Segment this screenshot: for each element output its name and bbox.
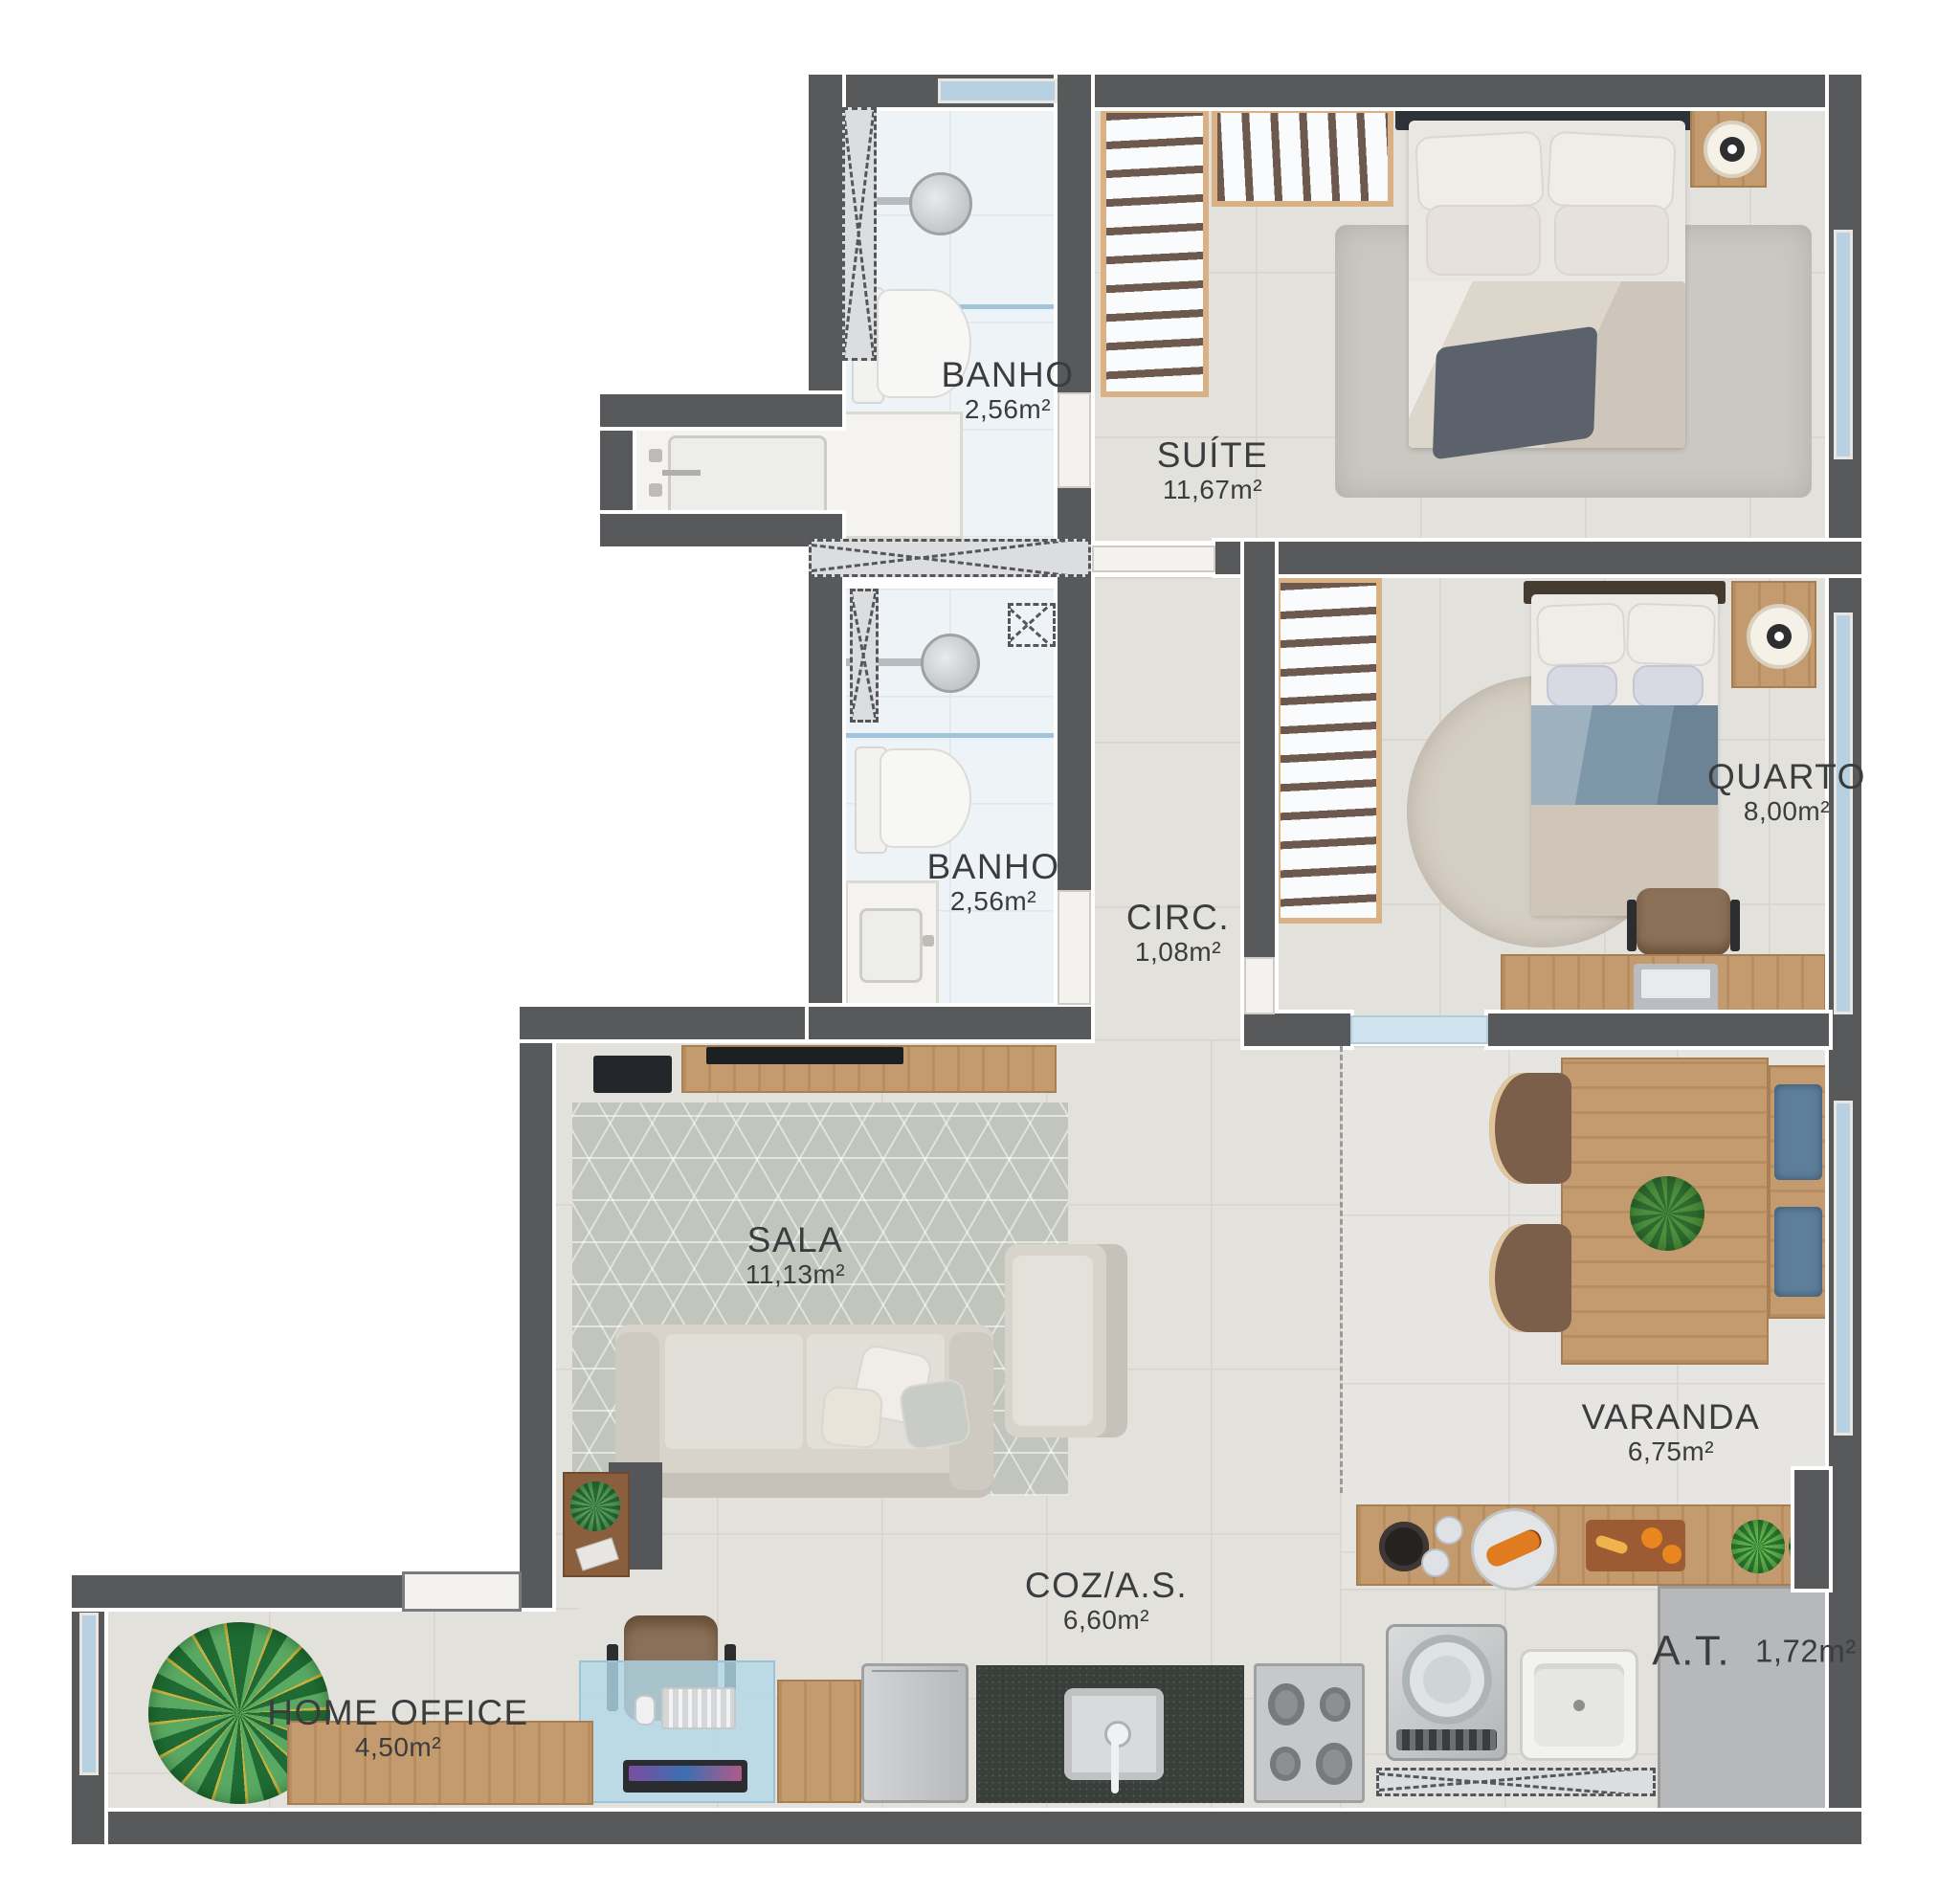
mouse-icon <box>635 1695 656 1726</box>
sala-armchair <box>1005 1244 1127 1437</box>
wall-sala-left <box>520 1005 552 1608</box>
room-area: 11,67m² <box>1157 476 1268 506</box>
monitor-icon <box>623 1760 747 1793</box>
varanda-dining-table <box>1561 1058 1769 1365</box>
shaft-between-bathrooms <box>809 539 1091 577</box>
wall-bath-left-lower <box>809 546 842 1039</box>
suite-double-bed <box>1395 103 1699 448</box>
wall-sala-top <box>520 1007 842 1039</box>
sink-counter-banho-social <box>845 880 939 1009</box>
room-area: 8,00m² <box>1707 797 1866 828</box>
room-label-quarto: QUARTO 8,00m² <box>1707 757 1866 828</box>
fridge-icon <box>861 1663 969 1803</box>
room-label-banho-suite: BANHO 2,56m² <box>941 355 1074 426</box>
floor-plan: BANHO 2,56m² SUÍTE 11,67m² BANHO 2,56m² … <box>0 0 1960 1893</box>
kitchen-counter-strip <box>777 1680 861 1803</box>
quarto-nightstand <box>1731 581 1816 688</box>
laptop-icon <box>1634 964 1718 1016</box>
room-area: 4,50m² <box>267 1733 528 1764</box>
door-banho-social <box>1058 890 1091 1005</box>
shower-glass-banho-social <box>842 733 1058 738</box>
room-label-banho-social: BANHO 2,56m² <box>926 847 1059 918</box>
sala-sofa <box>615 1325 993 1498</box>
window-varanda-right <box>1834 1101 1853 1436</box>
room-name: QUARTO <box>1707 757 1866 796</box>
room-name: A.T. <box>1652 1627 1730 1674</box>
quarto-wardrobe <box>1275 577 1382 924</box>
window-banho-suite-top <box>938 78 1058 103</box>
room-area: 2,56m² <box>926 887 1059 918</box>
room-label-varanda: VARANDA 6,75m² <box>1582 1397 1761 1468</box>
room-label-suite: SUÍTE 11,67m² <box>1157 435 1268 506</box>
cutting-board-icon <box>1586 1520 1685 1571</box>
wall-niche-top <box>600 394 842 427</box>
wall-bath-left-upper <box>809 75 842 394</box>
wall-bottom <box>72 1812 1861 1844</box>
room-name: SALA <box>746 1220 845 1259</box>
counter-plant-1 <box>1731 1520 1785 1573</box>
sala-side-table <box>563 1472 630 1577</box>
stove-icon <box>1254 1663 1365 1803</box>
window-suite-right <box>1834 230 1853 459</box>
varanda-chair-2 <box>1489 1224 1571 1332</box>
sala-tv-console <box>681 1045 1057 1093</box>
suite-wardrobe-vertical <box>1101 107 1209 397</box>
circ-floor <box>1088 577 1244 1046</box>
room-name: SUÍTE <box>1157 435 1268 475</box>
sala-varanda-open-boundary <box>1340 1046 1343 1493</box>
room-name: COZ/A.S. <box>1025 1566 1188 1605</box>
wall-quarto-bottom-b <box>1488 1013 1829 1046</box>
quarto-bed <box>1524 581 1726 916</box>
wall-banho-social-bottom <box>809 1007 1091 1039</box>
wall-niche-bottom <box>600 514 842 546</box>
drinks-tray-icon <box>1471 1508 1557 1591</box>
inspection-box-banho-social <box>1008 603 1056 647</box>
table-centerpiece-plant <box>1630 1176 1704 1251</box>
room-area: 2,56m² <box>941 395 1074 426</box>
room-area: 6,60m² <box>1025 1606 1188 1637</box>
toilet-icon-banho-social <box>855 746 971 850</box>
wall-suite-quarto-divider <box>1215 542 1861 574</box>
wall-quarto-bottom-a <box>1244 1013 1350 1046</box>
suite-wardrobe-horizontal <box>1212 107 1393 207</box>
room-area: 6,75m² <box>1582 1437 1761 1468</box>
room-label-sala: SALA 11,13m² <box>746 1220 845 1291</box>
door-quarto <box>1244 957 1275 1014</box>
suite-nightstand <box>1690 107 1767 188</box>
keyboard-icon <box>661 1687 736 1729</box>
room-area: 11,13m² <box>746 1260 845 1291</box>
room-label-circ: CIRC. 1,08m² <box>1126 898 1230 969</box>
room-name: BANHO <box>941 355 1074 394</box>
sala-tv-cabinet <box>593 1056 672 1093</box>
room-name: VARANDA <box>1582 1397 1761 1436</box>
entry-door <box>402 1571 522 1612</box>
room-area: 1,72m² <box>1755 1633 1857 1669</box>
varanda-counter <box>1356 1504 1823 1586</box>
home-office-glass-desk <box>579 1660 775 1803</box>
at-floor <box>1660 1589 1857 1812</box>
window-home-office-left <box>79 1613 99 1775</box>
shaft-banho-social <box>850 589 879 723</box>
kitchen-sink-counter <box>976 1665 1244 1803</box>
room-label-coz-as: COZ/A.S. 6,60m² <box>1025 1566 1188 1637</box>
room-label-at: A.T. 1,72m² <box>1652 1627 1857 1674</box>
room-name: BANHO <box>926 847 1059 886</box>
varanda-chair-1 <box>1489 1073 1571 1184</box>
kitchen-sink-icon <box>1064 1688 1164 1780</box>
room-name: HOME OFFICE <box>267 1693 528 1732</box>
room-name: CIRC. <box>1126 898 1230 937</box>
washing-machine-icon <box>1386 1624 1507 1761</box>
quarto-desk-chair <box>1627 888 1740 965</box>
room-label-home-office: HOME OFFICE 4,50m² <box>267 1693 528 1764</box>
shaft-banho-suite <box>842 107 877 361</box>
tv-icon-sala <box>706 1047 903 1064</box>
room-area: 1,08m² <box>1126 938 1230 969</box>
louver-service-area <box>1376 1768 1656 1796</box>
wall-corner-bottom-right <box>1794 1470 1829 1589</box>
door-varanda-slider <box>1350 1015 1488 1044</box>
laundry-tank-icon <box>1520 1649 1638 1761</box>
door-suite-entrance <box>1092 546 1215 572</box>
varanda-bench <box>1769 1065 1828 1319</box>
